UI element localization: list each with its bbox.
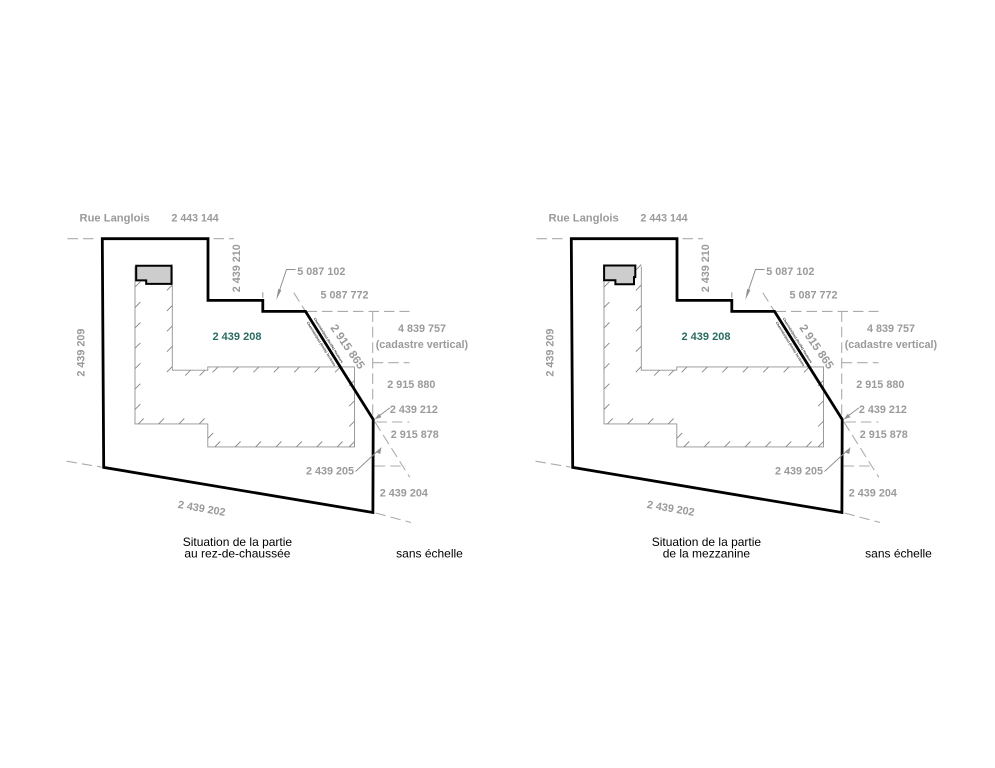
svg-text:2 915 878: 2 915 878 — [860, 429, 908, 441]
svg-text:2 439 205: 2 439 205 — [775, 466, 823, 478]
svg-text:de la mezzanine: de la mezzanine — [663, 547, 751, 561]
svg-text:5 087 102: 5 087 102 — [297, 266, 345, 278]
svg-text:2 915 878: 2 915 878 — [391, 429, 439, 441]
svg-text:au rez-de-chaussée: au rez-de-chaussée — [184, 547, 290, 561]
svg-text:2 439 208: 2 439 208 — [213, 331, 262, 343]
svg-text:2 439 204: 2 439 204 — [380, 488, 428, 500]
svg-text:4 839 757: 4 839 757 — [398, 323, 446, 335]
svg-text:2 443 144: 2 443 144 — [172, 212, 219, 224]
svg-text:sans échelle: sans échelle — [396, 547, 463, 561]
svg-text:2 443 144: 2 443 144 — [641, 212, 688, 224]
svg-text:2 439 210: 2 439 210 — [231, 244, 243, 292]
svg-text:5 087 772: 5 087 772 — [790, 289, 838, 301]
svg-text:Rue Langlois: Rue Langlois — [549, 212, 619, 224]
svg-text:2 439 209: 2 439 209 — [545, 329, 557, 377]
svg-text:sans échelle: sans échelle — [865, 547, 932, 561]
svg-text:2 439 212: 2 439 212 — [859, 404, 907, 416]
svg-text:2 439 208: 2 439 208 — [682, 331, 731, 343]
svg-text:(cadastre vertical): (cadastre vertical) — [845, 339, 938, 351]
svg-text:5 087 772: 5 087 772 — [321, 289, 369, 301]
svg-text:(cadastre vertical): (cadastre vertical) — [376, 339, 469, 351]
svg-text:2 439 212: 2 439 212 — [390, 404, 438, 416]
svg-text:Rue Langlois: Rue Langlois — [80, 212, 150, 224]
svg-text:2 915 880: 2 915 880 — [387, 379, 435, 391]
svg-text:2 439 205: 2 439 205 — [306, 466, 354, 478]
svg-text:2 439 209: 2 439 209 — [76, 329, 88, 377]
svg-text:5 087 102: 5 087 102 — [766, 266, 814, 278]
svg-text:2 915 880: 2 915 880 — [856, 379, 904, 391]
svg-text:2 439 204: 2 439 204 — [849, 488, 897, 500]
svg-text:4 839 757: 4 839 757 — [867, 323, 915, 335]
svg-text:2 439 210: 2 439 210 — [700, 244, 712, 292]
